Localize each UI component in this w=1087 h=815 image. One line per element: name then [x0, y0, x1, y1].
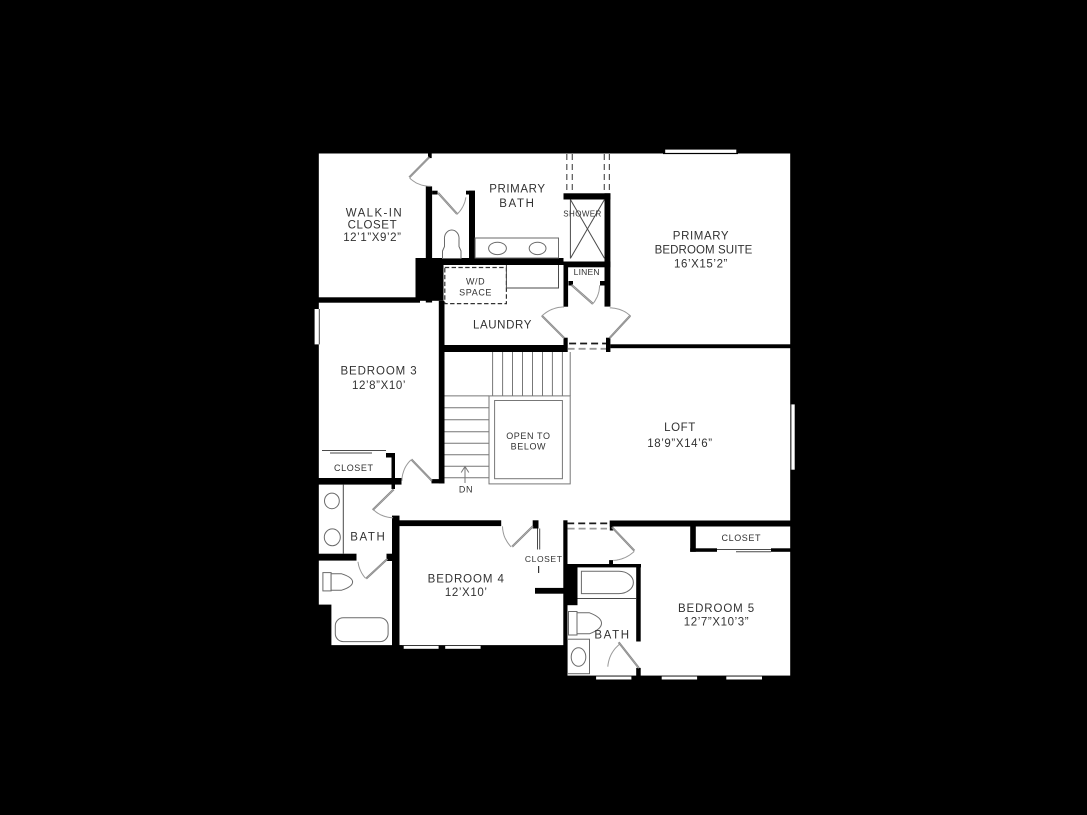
svg-text:18’9”X14’6”: 18’9”X14’6”: [647, 438, 712, 450]
svg-text:OPEN TO: OPEN TO: [506, 431, 550, 441]
svg-text:12’1”X9’2”: 12’1”X9’2”: [343, 232, 401, 244]
svg-text:CLOSET: CLOSET: [334, 463, 374, 473]
svg-text:BATH: BATH: [594, 630, 630, 642]
svg-text:BEDROOM 5: BEDROOM 5: [678, 603, 755, 615]
svg-text:PRIMARY: PRIMARY: [673, 231, 729, 243]
svg-text:BEDROOM 3: BEDROOM 3: [340, 366, 417, 378]
svg-text:PRIMARY: PRIMARY: [489, 184, 545, 196]
svg-text:BATH: BATH: [499, 198, 535, 210]
svg-text:SHOWER: SHOWER: [563, 210, 601, 219]
svg-text:BEDROOM 4: BEDROOM 4: [428, 574, 505, 586]
svg-text:BEDROOM SUITE: BEDROOM SUITE: [655, 245, 753, 257]
svg-text:12’8”X10’: 12’8”X10’: [352, 380, 406, 392]
svg-text:BELOW: BELOW: [511, 442, 547, 452]
svg-text:WALK-IN: WALK-IN: [346, 207, 403, 219]
svg-text:16’X15’2”: 16’X15’2”: [674, 259, 728, 271]
svg-text:CLOSET: CLOSET: [348, 220, 398, 232]
svg-text:W/D: W/D: [466, 277, 485, 287]
svg-text:LOFT: LOFT: [664, 422, 696, 434]
svg-text:DN: DN: [459, 485, 473, 495]
svg-text:SPACE: SPACE: [459, 288, 492, 298]
svg-text:12’7”X10’3”: 12’7”X10’3”: [684, 617, 749, 629]
svg-text:CLOSET: CLOSET: [525, 554, 563, 564]
svg-text:LAUNDRY: LAUNDRY: [473, 320, 532, 332]
svg-text:BATH: BATH: [350, 532, 386, 544]
svg-text:CLOSET: CLOSET: [721, 533, 761, 543]
svg-text:12’X10’: 12’X10’: [445, 587, 488, 599]
svg-text:LINEN: LINEN: [574, 267, 600, 277]
